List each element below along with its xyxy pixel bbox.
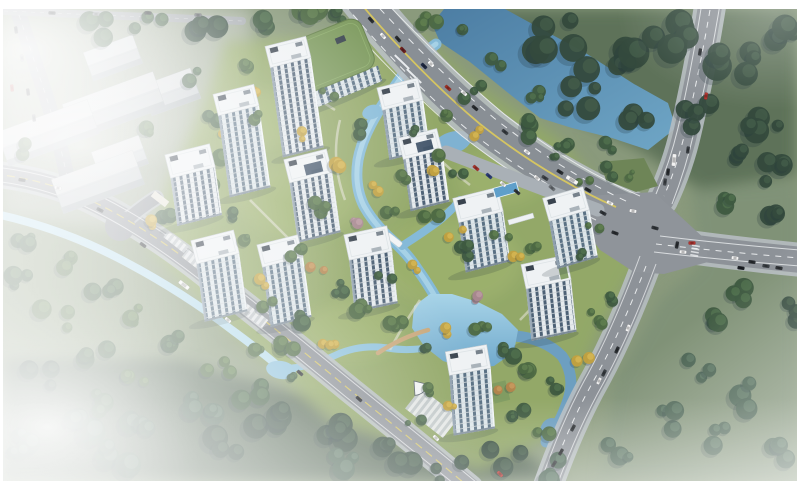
frame-top — [0, 0, 800, 9]
haze-overlay — [0, 0, 800, 485]
aerial-masterplan-render — [0, 0, 800, 485]
masterplan-svg — [0, 0, 800, 485]
frame-left — [0, 0, 3, 485]
haze-layer — [0, 0, 800, 485]
frame-bottom — [0, 481, 800, 485]
